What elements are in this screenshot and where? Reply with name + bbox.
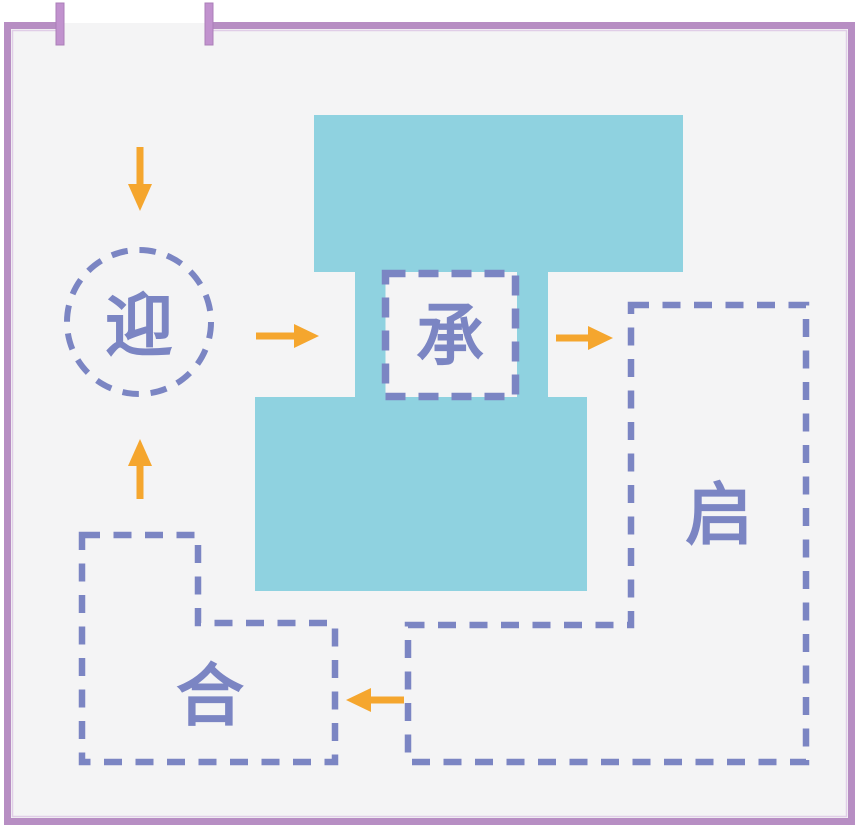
concept-diagram: 承 迎 启 合 [0,0,860,840]
door-gap-lower [64,23,205,33]
diagram-canvas: 承 迎 启 合 [0,0,860,840]
cheng-label: 承 [416,298,484,377]
door-gap-upper [64,13,205,23]
door-jamb-tick-right [205,3,213,45]
ying-label: 迎 [105,288,173,367]
he-label: 合 [176,658,244,737]
door-jamb-tick-left [56,3,64,45]
qi-label: 启 [685,477,753,556]
node-cheng: 承 [386,274,516,397]
